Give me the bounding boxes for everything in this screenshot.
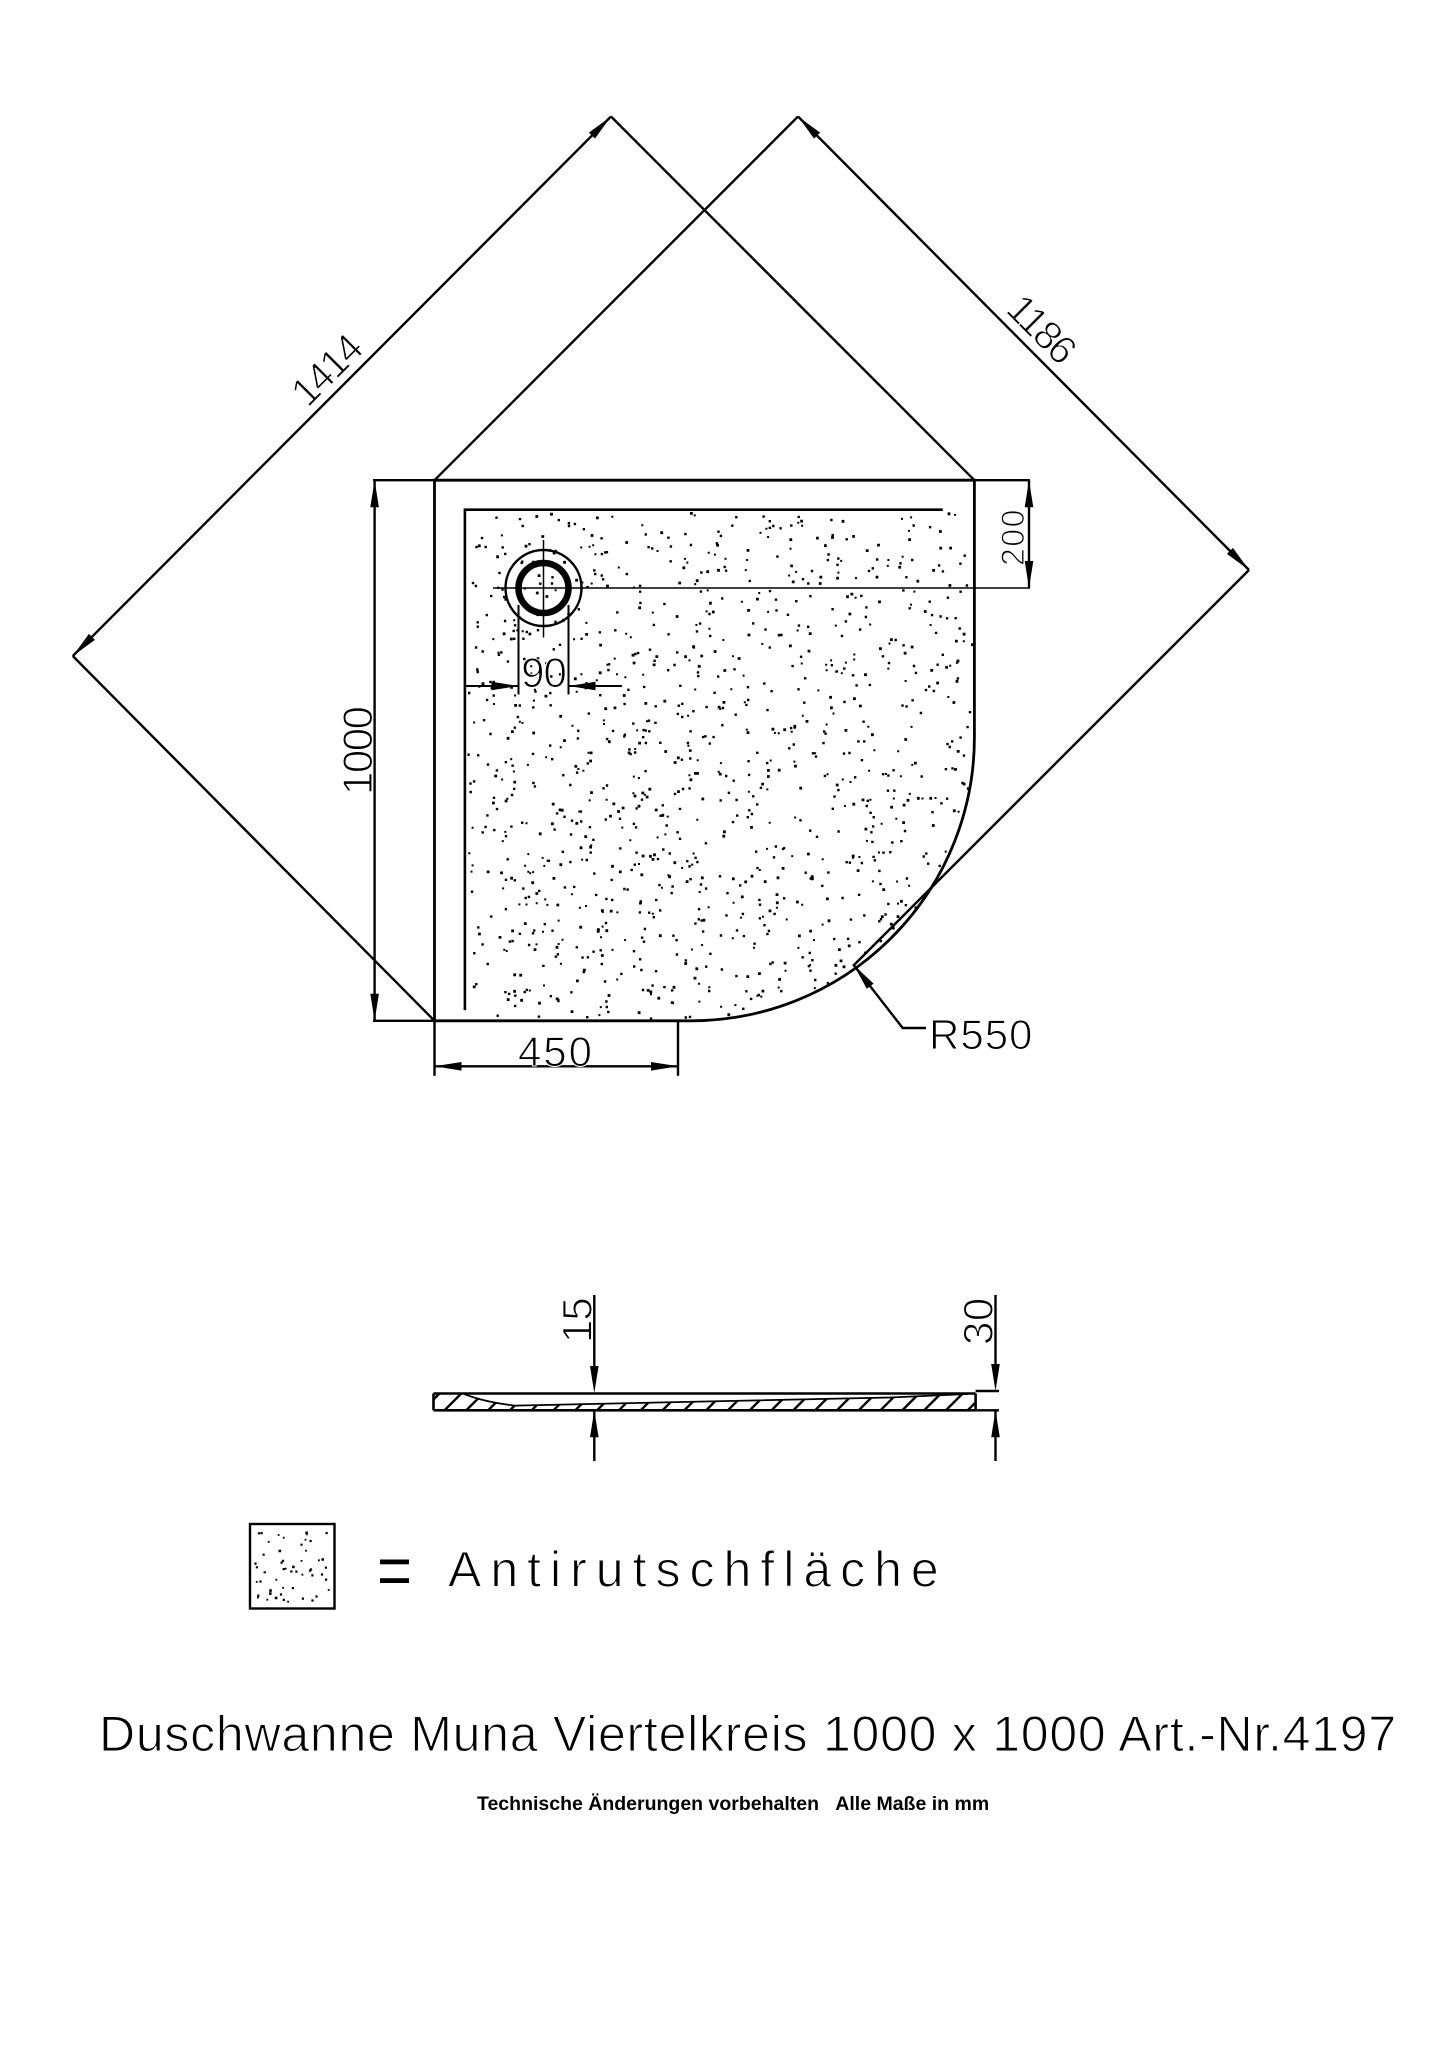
svg-text:200: 200 (995, 508, 1031, 566)
svg-text:Antirutschfläche: Antirutschfläche (448, 1542, 948, 1598)
svg-text:Duschwanne Muna Viertelkreis 1: Duschwanne Muna Viertelkreis 1000 x 1000… (99, 1706, 1397, 1762)
svg-text:450: 450 (518, 1028, 594, 1075)
svg-text:1000: 1000 (334, 707, 381, 795)
svg-text:R550: R550 (929, 1011, 1033, 1058)
svg-text:30: 30 (955, 1297, 1002, 1345)
svg-text:Technische Änderungen vorbehal: Technische Änderungen vorbehalten Alle M… (477, 1792, 989, 1815)
svg-text:15: 15 (554, 1298, 601, 1343)
svg-text:90: 90 (521, 649, 566, 696)
